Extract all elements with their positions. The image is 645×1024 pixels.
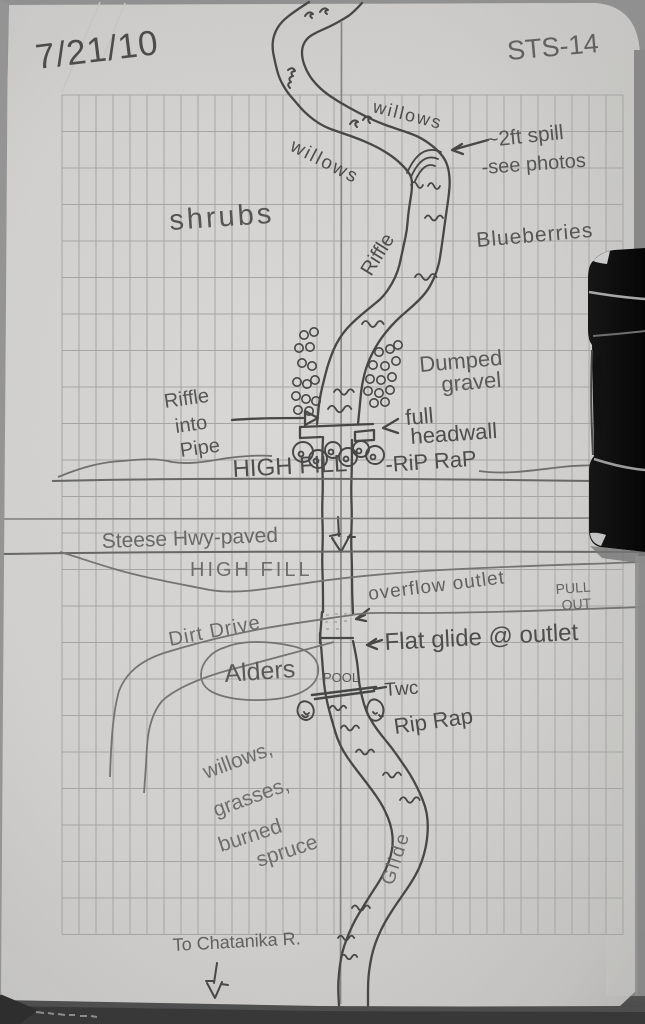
svg-text:gravel: gravel [440,367,502,397]
svg-text:Alders: Alders [223,655,296,688]
svg-text:HIGH FILL: HIGH FILL [190,559,313,581]
svg-text:Twc: Twc [384,678,419,701]
svg-text:POOL: POOL [323,670,359,685]
svg-text:PULL: PULL [555,579,591,597]
svg-text:into: into [174,412,209,438]
svg-text:OUT: OUT [561,595,592,613]
